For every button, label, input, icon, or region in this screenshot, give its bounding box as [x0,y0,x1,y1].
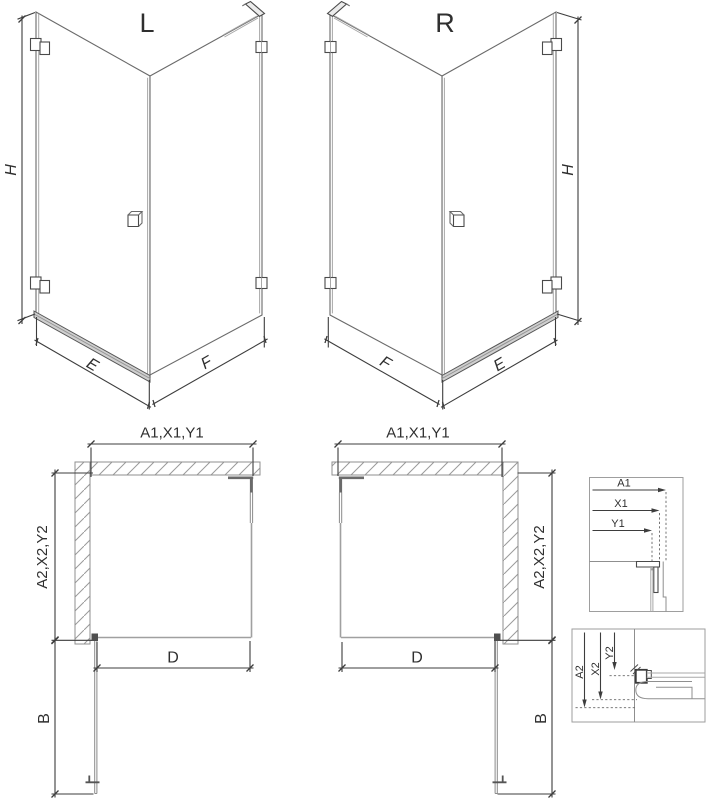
glass-clamp-section [636,670,647,683]
wall-clamp-top [256,42,267,53]
bracket-arm-section [637,562,660,568]
side-panel [330,14,442,375]
iso-left-title: L [139,8,154,38]
wall-clamp-top [325,42,336,53]
hinge-plate-inner [543,281,553,294]
drawing-canvas: L [0,0,720,800]
detail-label-a1: A1 [617,478,630,490]
detail-label-y1: Y1 [611,518,624,530]
detail-label-a2: A2 [574,665,586,678]
dim-label-h: H [3,164,20,176]
iso-right-title: R [435,8,455,38]
dim-label-b: B [533,713,550,724]
door-pivot-block [494,634,501,642]
detail-label-x1: X1 [614,498,627,510]
wall-right-hatched [503,462,518,644]
hinge-plate-outer [31,277,42,289]
side-glass [150,14,262,375]
detail-label-y2: Y2 [604,646,616,659]
detail-box-horizontal: A1 X1 Y1 [590,478,684,612]
hinge-plate-outer [551,277,562,289]
side-glass [330,14,442,375]
technical-drawing-page: L [0,0,720,800]
dim-label-d: D [167,650,179,667]
wall-clamp-bottom [325,278,336,289]
hinge-plate-inner [40,281,50,294]
detail-label-x2: X2 [590,662,602,675]
hinge-plate-inner [40,42,50,55]
detail-frame [590,478,684,612]
hinge-plate-outer [551,39,562,51]
detail-box-vertical: A2 X2 Y2 [572,629,705,722]
wall-left-hatched [75,462,90,644]
door-pivot-block [92,634,99,642]
dim-label-d: D [411,650,423,667]
wall-top-hatched [332,462,518,475]
wall-clamp-bottom [256,278,267,289]
hinge-plate-inner [543,42,553,55]
side-panel [150,14,262,375]
dim-label-a2x2y2: A2,X2,Y2 [531,525,548,588]
bracket-post-section [654,567,658,593]
dim-label-h: H [560,164,577,176]
dim-label-a1x1y1: A1,X1,Y1 [140,425,203,442]
wall-top-hatched [75,462,260,475]
hinge-plate-outer [31,39,42,51]
dim-label-a1x1y1: A1,X1,Y1 [386,425,449,442]
dim-label-a2x2y2: A2,X2,Y2 [34,525,51,588]
dim-label-b: B [36,713,53,724]
